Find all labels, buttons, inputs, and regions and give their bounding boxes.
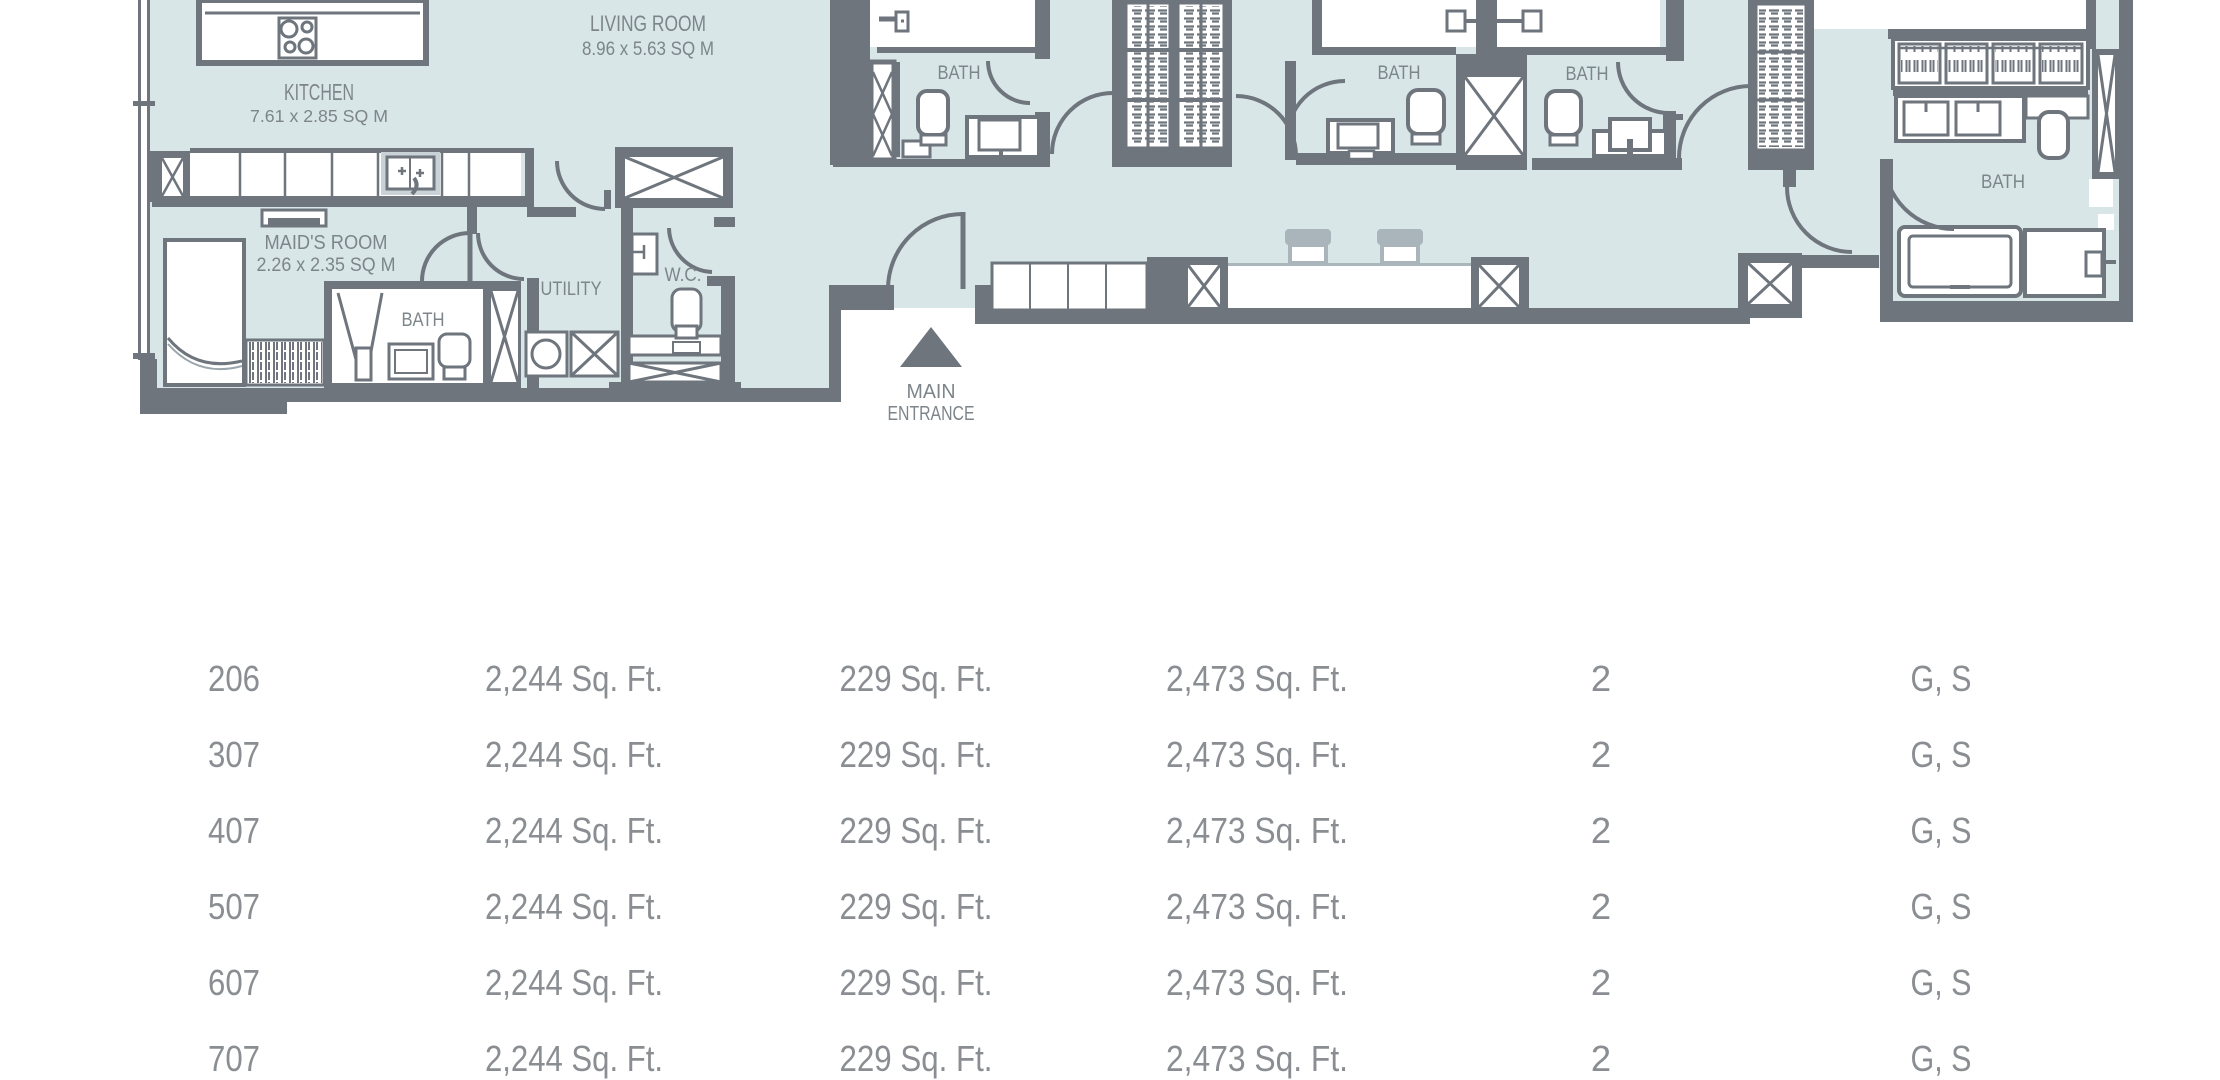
svg-text:607: 607 <box>208 962 260 1003</box>
svg-text:707: 707 <box>208 1038 260 1079</box>
svg-text:G, S: G, S <box>1911 810 1972 851</box>
svg-text:BATH: BATH <box>1566 64 1609 85</box>
svg-text:229 Sq. Ft.: 229 Sq. Ft. <box>840 1038 993 1079</box>
svg-text:BATH: BATH <box>938 63 981 84</box>
svg-text:BATH: BATH <box>1378 63 1421 84</box>
svg-text:MAIN: MAIN <box>907 380 956 403</box>
svg-text:G, S: G, S <box>1911 658 1972 699</box>
svg-text:2,244 Sq. Ft.: 2,244 Sq. Ft. <box>485 734 663 775</box>
svg-text:8.96 x 5.63 SQ M: 8.96 x 5.63 SQ M <box>582 39 714 60</box>
svg-text:407: 407 <box>208 810 260 851</box>
svg-text:2.26 x 2.35 SQ M: 2.26 x 2.35 SQ M <box>257 255 396 276</box>
svg-text:2: 2 <box>1591 810 1611 851</box>
svg-text:2,473 Sq. Ft.: 2,473 Sq. Ft. <box>1166 962 1348 1003</box>
svg-text:2: 2 <box>1591 962 1611 1003</box>
svg-text:2,244 Sq. Ft.: 2,244 Sq. Ft. <box>485 886 663 927</box>
svg-text:2,244 Sq. Ft.: 2,244 Sq. Ft. <box>485 810 663 851</box>
svg-text:2,244 Sq. Ft.: 2,244 Sq. Ft. <box>485 658 663 699</box>
svg-text:2,244 Sq. Ft.: 2,244 Sq. Ft. <box>485 962 663 1003</box>
svg-text:229 Sq. Ft.: 229 Sq. Ft. <box>840 658 993 699</box>
svg-text:G, S: G, S <box>1911 962 1972 1003</box>
svg-text:2,473 Sq. Ft.: 2,473 Sq. Ft. <box>1166 734 1348 775</box>
svg-text:2,473 Sq. Ft.: 2,473 Sq. Ft. <box>1166 886 1348 927</box>
svg-text:BATH: BATH <box>402 310 445 331</box>
svg-text:MAID'S ROOM: MAID'S ROOM <box>265 231 388 254</box>
svg-text:KITCHEN: KITCHEN <box>284 79 354 105</box>
svg-text:507: 507 <box>208 886 260 927</box>
svg-text:2,473 Sq. Ft.: 2,473 Sq. Ft. <box>1166 658 1348 699</box>
svg-text:UTILITY: UTILITY <box>541 279 602 300</box>
svg-text:2,473 Sq. Ft.: 2,473 Sq. Ft. <box>1166 810 1348 851</box>
svg-text:229 Sq. Ft.: 229 Sq. Ft. <box>840 962 993 1003</box>
svg-text:BATH: BATH <box>1981 172 2025 193</box>
svg-text:2: 2 <box>1591 658 1611 699</box>
svg-text:229 Sq. Ft.: 229 Sq. Ft. <box>840 810 993 851</box>
svg-text:2,473 Sq. Ft.: 2,473 Sq. Ft. <box>1166 1038 1348 1079</box>
svg-text:ENTRANCE: ENTRANCE <box>888 402 975 425</box>
svg-text:G, S: G, S <box>1911 734 1972 775</box>
svg-text:7.61 x 2.85 SQ M: 7.61 x 2.85 SQ M <box>250 106 388 126</box>
svg-text:2: 2 <box>1591 734 1611 775</box>
svg-text:307: 307 <box>208 734 260 775</box>
svg-text:G, S: G, S <box>1911 886 1972 927</box>
svg-text:2,244 Sq. Ft.: 2,244 Sq. Ft. <box>485 1038 663 1079</box>
svg-text:2: 2 <box>1591 1038 1611 1079</box>
svg-text:206: 206 <box>208 658 260 699</box>
svg-text:G, S: G, S <box>1911 1038 1972 1079</box>
svg-text:W.C.: W.C. <box>665 265 702 286</box>
svg-text:229 Sq. Ft.: 229 Sq. Ft. <box>840 734 993 775</box>
svg-text:LIVING ROOM: LIVING ROOM <box>590 11 706 36</box>
svg-text:2: 2 <box>1591 886 1611 927</box>
svg-text:229 Sq. Ft.: 229 Sq. Ft. <box>840 886 993 927</box>
